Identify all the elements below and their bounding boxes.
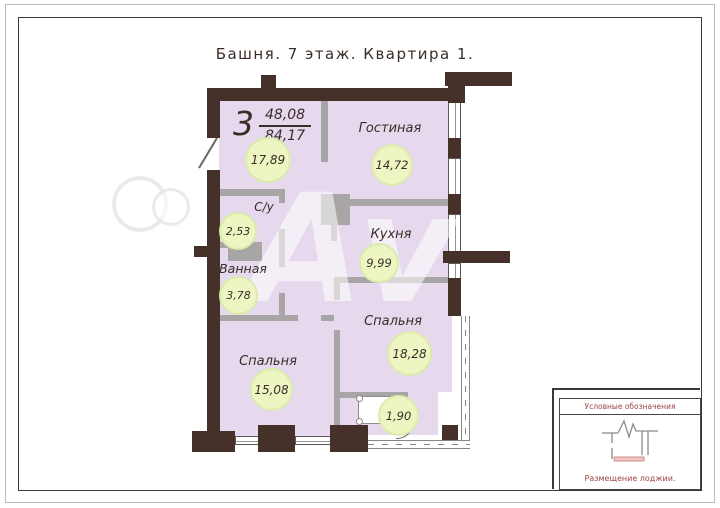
window <box>295 436 332 445</box>
wall-pier <box>448 138 461 158</box>
area-badge-hall: 17,89 <box>245 137 291 183</box>
partition <box>279 229 285 267</box>
wall-stub <box>194 246 207 257</box>
partition <box>331 225 337 241</box>
partition <box>334 277 340 300</box>
wall-left-upper <box>207 88 220 138</box>
partition <box>328 199 455 206</box>
duct-block <box>228 248 262 261</box>
titleblock-divider-h <box>552 388 700 390</box>
room-label-bath: Ванная <box>213 261 273 276</box>
wall-right-bar <box>443 251 510 263</box>
legend-box: Условные обозначения Размещение лоджии. <box>559 398 701 490</box>
window <box>448 102 461 140</box>
partition <box>219 315 298 321</box>
wall-pier <box>448 194 461 214</box>
loggia-glazing <box>461 316 470 447</box>
loggia-glazing <box>368 440 470 449</box>
loggia-placement-icon <box>598 419 662 469</box>
rooms-count: 3 <box>233 104 254 145</box>
window <box>235 436 260 445</box>
partition <box>321 315 334 321</box>
drawing-sheet: Башня. 7 этаж. Квартира 1. <box>0 0 720 508</box>
room-label-kitchen: Кухня <box>356 227 426 242</box>
wall-pier <box>330 425 368 452</box>
window <box>448 158 461 196</box>
legend-caption: Размещение лоджии. <box>560 474 700 483</box>
wall-pier <box>258 425 295 452</box>
legend-title: Условные обозначения <box>560 399 700 415</box>
titleblock-divider-v <box>552 388 554 489</box>
room-label-bedroom-small: Спальня <box>228 354 308 369</box>
room-label-bedroom-big: Спальня <box>353 314 433 329</box>
area-badge-kitchen: 9,99 <box>359 243 399 283</box>
fraction-bar <box>259 125 311 127</box>
wall-top <box>207 88 457 101</box>
area-badge-living: 14,72 <box>371 144 413 186</box>
area-badge-wc: 2,53 <box>219 212 257 250</box>
partition <box>340 277 455 283</box>
wall-left-lower <box>207 170 220 433</box>
area-badge-bedroom-small: 15,08 <box>250 368 293 411</box>
wall-block <box>442 425 458 440</box>
partition <box>279 293 285 316</box>
wall-stub <box>261 75 276 89</box>
window <box>448 214 461 253</box>
partition <box>334 330 340 433</box>
area-badge-bath: 3,78 <box>219 276 258 315</box>
wall-top-right <box>445 72 512 86</box>
room-label-living: Гостиная <box>350 121 430 136</box>
area-badge-bedroom-big: 18,28 <box>387 331 432 376</box>
wall-pier <box>192 431 235 452</box>
area-upper: 48,08 <box>265 107 305 124</box>
wall-pier <box>448 278 461 316</box>
wall-segment <box>448 85 465 103</box>
partition <box>321 100 328 162</box>
partition <box>219 189 285 196</box>
area-badge-loggia: 1,90 <box>378 395 419 436</box>
legend-body: Размещение лоджии. <box>560 415 700 489</box>
page-title: Башня. 7 этаж. Квартира 1. <box>195 45 495 63</box>
room-label-wc: С/у <box>244 200 284 214</box>
